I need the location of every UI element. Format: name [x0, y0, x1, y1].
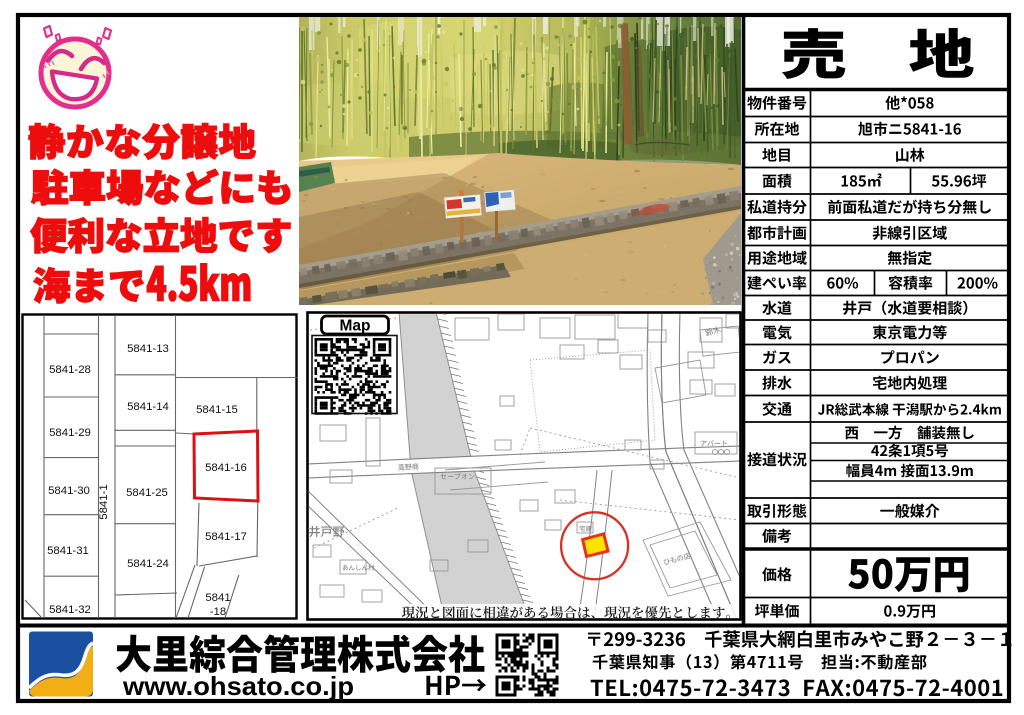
svg-text:5841-15: 5841-15	[196, 404, 238, 416]
svg-text:5841-13: 5841-13	[127, 343, 169, 355]
svg-text:5841-17: 5841-17	[205, 531, 247, 543]
svg-text:5841-16: 5841-16	[205, 462, 247, 474]
svg-text:5841-32: 5841-32	[49, 604, 91, 616]
svg-text:www.ohsato.co.jp: www.ohsato.co.jp	[122, 671, 354, 701]
svg-text:-18: -18	[210, 606, 226, 618]
svg-text:5841-14: 5841-14	[127, 401, 169, 413]
svg-text:5841-30: 5841-30	[48, 485, 90, 497]
svg-text:Map: Map	[340, 318, 371, 335]
svg-text:5841-1: 5841-1	[98, 484, 110, 519]
svg-text:5841-31: 5841-31	[47, 545, 89, 557]
svg-text:5841-25: 5841-25	[126, 487, 168, 499]
svg-text:5841-28: 5841-28	[49, 364, 91, 376]
svg-text:5841-29: 5841-29	[49, 427, 91, 439]
svg-text:5841-24: 5841-24	[127, 558, 169, 570]
svg-text:5841: 5841	[205, 592, 230, 604]
